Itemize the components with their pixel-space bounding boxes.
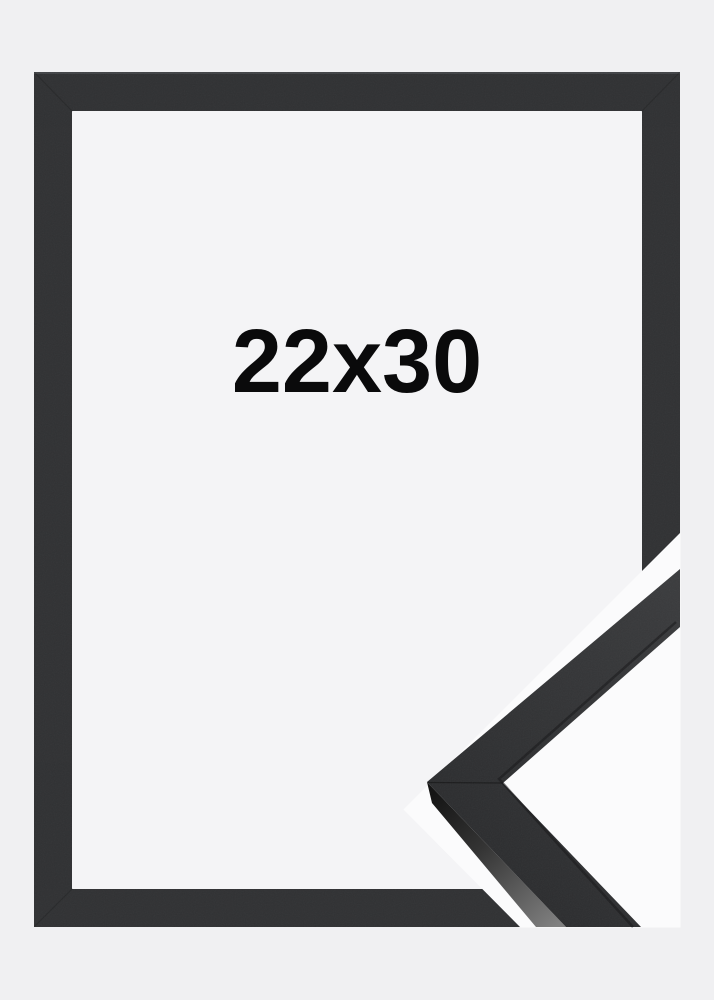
product-photo: 22x30 [0,0,714,1000]
frame-product-image [0,0,714,1000]
size-label: 22x30 [0,312,714,412]
